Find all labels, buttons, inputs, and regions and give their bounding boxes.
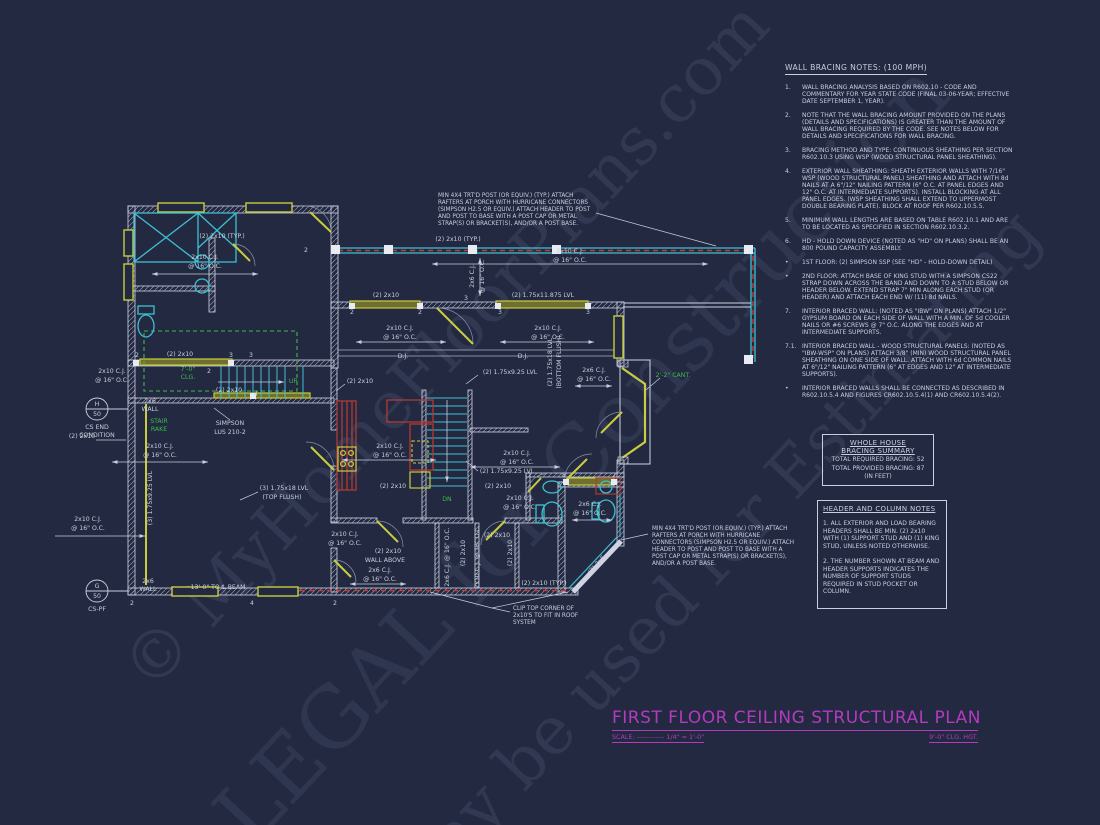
plan-label: 3 xyxy=(464,295,468,302)
plan-label: (2) 2x10 xyxy=(507,540,514,566)
bracing-provided: TOTAL PROVIDED BRACING: 87 xyxy=(828,465,928,473)
note-item: 4.EXTERIOR WALL SHEATHING: SHEATH EXTERI… xyxy=(785,168,1013,210)
plan-label: 2x10 C.J. xyxy=(191,254,219,261)
plan-label: CS END xyxy=(85,424,109,431)
plan-label: 2x10 C.J. @ 16" O.C. xyxy=(473,525,481,588)
plan-label: 2x10 C.J. xyxy=(534,325,562,332)
plan-label: 2'-2" CANT. xyxy=(656,372,691,379)
plan-label: 2x10 C.J. xyxy=(376,443,404,450)
plan-label: 3 xyxy=(229,352,233,359)
plan-label: (3) 1.75x9.25 LVL xyxy=(147,470,154,525)
plan-label: (2) 2x10 xyxy=(485,483,511,490)
plan-label: 2x6 xyxy=(142,578,154,585)
bracing-summary-box: WHOLE HOUSE BRACING SUMMARY TOTAL REQUIR… xyxy=(822,434,934,486)
plan-label: RAKE xyxy=(151,426,167,433)
plan-label: (2) 2x10 xyxy=(484,532,510,539)
plan-label: 2 xyxy=(130,600,134,607)
plan-label: STAIR xyxy=(150,418,168,425)
clip-corner-note: CLIP TOP CORNER OF 2x10'S TO FIT IN ROOF… xyxy=(513,606,585,627)
note-item: •INTERIOR BRACED WALLS SHALL BE CONNECTE… xyxy=(785,385,1013,399)
plan-label: CS-PF xyxy=(88,606,106,613)
plan-label: (2) 2x10 (TYP.) xyxy=(521,580,566,587)
post-note-bottom: MIN 4X4 TRT'D POST (OR EQUIV.) (TYP.) AT… xyxy=(652,526,798,568)
plan-label: H xyxy=(95,401,100,408)
plan-label: 2 xyxy=(135,352,139,359)
plan-label: (2) 2x10 xyxy=(373,292,399,299)
plan-label: 2x10 C.J. xyxy=(98,368,126,375)
plan-label: DN xyxy=(442,496,452,503)
plan-label: @ 16" O.C. xyxy=(503,503,537,511)
plan-label: 2x6 C.J. xyxy=(578,501,602,508)
plan-label: 4 xyxy=(250,600,254,607)
bracing-required: TOTAL REQUIRED BRACING: 52 xyxy=(828,456,928,464)
post-note-top: MIN 4X4 TRT'D POST (OR EQUIV.) (TYP.) AT… xyxy=(438,193,596,228)
plan-label: 2x6 C.J. @ 16" O.C. xyxy=(443,527,451,586)
plan-label: @ 16" O.C. xyxy=(363,575,397,583)
plan-label: (2) 2x10 xyxy=(380,483,406,490)
plan-label: @ 16" O.C. xyxy=(188,262,222,270)
plan-label: (2) 2x10 xyxy=(347,378,373,385)
plan-label: WALL xyxy=(142,406,159,413)
plan-label: 2 xyxy=(304,247,308,254)
plan-label: @ 16" O.C. xyxy=(478,259,486,293)
plan-label: D.J. xyxy=(518,353,529,360)
plan-label: 2 xyxy=(350,309,354,316)
bracing-units: (IN FEET) xyxy=(828,473,928,481)
wall-bracing-notes-title: WALL BRACING NOTES: (100 MPH) xyxy=(785,63,927,75)
plan-label: (BOTTOM FLUSH) xyxy=(556,335,563,388)
plan-label: @ 16" O.C. xyxy=(373,451,407,459)
wall-bracing-notes-panel: WALL BRACING NOTES: (100 MPH) 1.WALL BRA… xyxy=(785,55,1013,406)
header-column-notes-box: HEADER AND COLUMN NOTES 1. ALL EXTERIOR … xyxy=(817,500,947,609)
plan-label: (2) 2x10 xyxy=(460,540,467,566)
plan-label: 2 xyxy=(333,600,337,607)
header-column-notes-title: HEADER AND COLUMN NOTES xyxy=(823,505,941,513)
plan-label: 4 xyxy=(254,391,258,398)
plan-label: 7'-0" xyxy=(181,366,196,373)
plan-label: @ 16" O.C. xyxy=(143,451,177,459)
note-item: •2ND FLOOR: ATTACH BASE OF KING STUD WIT… xyxy=(785,273,1013,301)
plan-label: 2x10 C.J. xyxy=(556,248,584,255)
plan-label: 13'-0" TO ℄ BEAM xyxy=(191,584,246,591)
plan-label: 3 xyxy=(586,309,590,316)
plan-label: (2) 1.75x11.875 LVL xyxy=(512,292,575,299)
note-item: •1ST FLOOR: (2) SIMPSON SSP (SEE "HD" - … xyxy=(785,259,1013,266)
plan-label: 2x6 xyxy=(144,398,156,405)
note-item: 3.BRACING METHOD AND TYPE: CONTINUOUS SH… xyxy=(785,147,1013,161)
plan-label: (2) 2x10 (TYP.) xyxy=(199,233,244,240)
bracing-summary-title: WHOLE HOUSE xyxy=(828,439,928,447)
plan-label: (2) 2x10 xyxy=(375,548,401,555)
note-item: 6.HD - HOLD DOWN DEVICE (NOTED AS "HD" O… xyxy=(785,238,1013,252)
sheet-title: FIRST FLOOR CEILING STRUCTURAL PLAN xyxy=(612,708,978,731)
note-item: 2.NOTE THAT THE WALL BRACING AMOUNT PROV… xyxy=(785,112,1013,140)
plan-label: WALL ABOVE xyxy=(365,557,405,564)
plan-label: (2) 1.75x9.25 LVL xyxy=(483,369,538,376)
plan-label: 2x10 C.J. xyxy=(331,531,359,538)
header-note-1: 1. ALL EXTERIOR AND LOAD BEARING HEADERS… xyxy=(823,520,941,550)
plan-label: (2) 2x10 xyxy=(167,351,193,358)
plan-label: 3 xyxy=(498,309,502,316)
plan-label: 2x10 C.J. xyxy=(74,516,102,523)
plan-label: 2 xyxy=(612,472,616,479)
plan-label: 50 xyxy=(93,411,101,418)
plan-label: @ 16" O.C. xyxy=(95,376,129,384)
plan-label: @ 16" O.C. xyxy=(71,524,105,532)
note-item: 1.WALL BRACING ANALYSIS BASED ON R602.10… xyxy=(785,84,1013,105)
note-item: 7.INTERIOR BRACED WALL: (NOTED AS "IBW" … xyxy=(785,308,1013,336)
plan-label: CLG. xyxy=(181,374,196,381)
plan-label: G xyxy=(95,583,100,590)
plan-label: UP xyxy=(289,378,298,385)
plan-label: (2) 2x10 (TYP.) xyxy=(435,236,480,243)
plan-label: 2x6 C.J. xyxy=(368,567,392,574)
blueprint-sheet: © MyHomeFloorPlans.com ILLEGAL for Const… xyxy=(0,0,1100,825)
plan-label: LUS 210-2 xyxy=(214,429,246,436)
plan-label: (2) 1.75x18 LVL xyxy=(547,337,554,386)
plan-label: 2x6 C.J. xyxy=(582,367,606,374)
plan-label: (TOP FLUSH) xyxy=(263,494,302,501)
plan-label: (2) 2x10 xyxy=(216,387,242,394)
note-item: 7.1.INTERIOR BRACED WALL - WOOD STRUCTUR… xyxy=(785,343,1013,378)
plan-label: @ 16" O.C. xyxy=(577,375,611,383)
ceiling-height-label: 9'-0" CLG. HGT. xyxy=(929,733,978,743)
plan-label: 3 xyxy=(249,352,253,359)
plan-label: @ 16" O.C. xyxy=(553,256,587,264)
plan-label: 2x10 C.J. xyxy=(146,443,174,450)
plan-label: 2x10 C.J. xyxy=(386,325,414,332)
plan-label: SIMPSON xyxy=(216,420,245,427)
plan-label: (2) 1.75x9.25 LVL xyxy=(480,468,535,475)
plan-label: 2x10 C.J. xyxy=(506,495,534,502)
plan-label: CONDITION xyxy=(79,432,115,439)
plan-label: @ 16" O.C. xyxy=(383,333,417,341)
plan-label: @ 16" O.C. xyxy=(573,509,607,517)
plan-label: D.J. xyxy=(398,353,409,360)
note-item: 5.MINIMUM WALL LENGTHS ARE BASED ON TABL… xyxy=(785,217,1013,231)
plan-label: 2 xyxy=(418,309,422,316)
plan-label: 8 xyxy=(562,472,566,479)
diagonal-corner-trim xyxy=(569,537,617,588)
plan-label: 2x6 C.J. xyxy=(469,264,476,288)
plan-label: 2 xyxy=(207,368,211,375)
leader-lines xyxy=(96,213,716,612)
master-bath-fixtures xyxy=(134,213,236,337)
plan-label: @ 16" O.C. xyxy=(500,458,534,466)
plan-label: @ 16" O.C. xyxy=(328,539,362,547)
header-note-2: 2. THE NUMBER SHOWN AT BEAM AND HEADER S… xyxy=(823,558,941,596)
plan-label: WALL xyxy=(140,586,157,593)
plan-label: 2x10 C.J. xyxy=(503,450,531,457)
plan-label: 50 xyxy=(93,593,101,600)
plan-label: (3) 1.75x18 LVL xyxy=(260,485,309,492)
title-block: FIRST FLOOR CEILING STRUCTURAL PLAN SCAL… xyxy=(612,708,978,743)
scale-label: SCALE: ------------ 1/4" = 1'-0" xyxy=(612,733,704,743)
bay-window xyxy=(618,360,650,464)
